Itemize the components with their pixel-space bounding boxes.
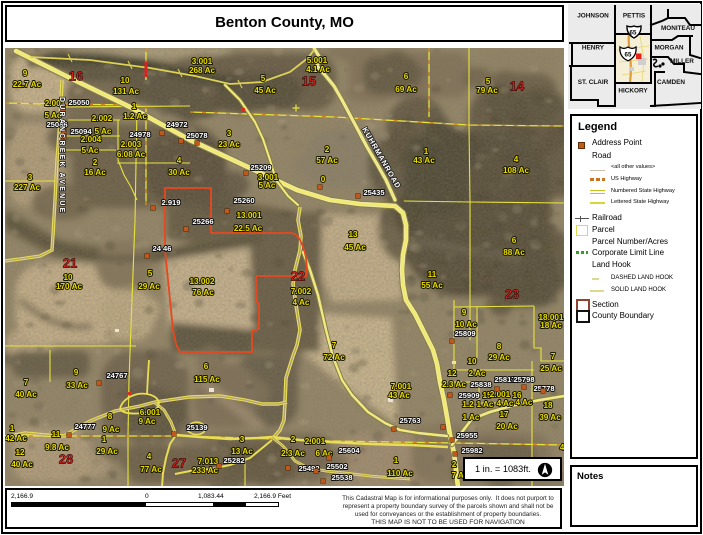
svg-text:25282: 25282: [223, 456, 244, 465]
svg-text:77 Ac: 77 Ac: [140, 465, 162, 474]
svg-text:MONITEAU: MONITEAU: [661, 25, 695, 32]
svg-text:108 Ac: 108 Ac: [503, 166, 530, 175]
svg-text:MORGAN: MORGAN: [654, 45, 683, 52]
svg-text:25538: 25538: [331, 473, 352, 482]
svg-text:65: 65: [630, 30, 637, 37]
svg-text:6: 6: [204, 362, 209, 371]
svg-text:25838: 25838: [470, 380, 491, 389]
svg-text:3: 3: [28, 173, 33, 182]
svg-text:2: 2: [291, 435, 296, 444]
svg-text:9 Ac: 9 Ac: [103, 425, 120, 434]
svg-text:131 Ac: 131 Ac: [113, 87, 140, 96]
svg-text:88 Ac: 88 Ac: [503, 248, 525, 257]
svg-text:8: 8: [497, 342, 502, 351]
svg-text:1.2 Ac: 1.2 Ac: [123, 112, 147, 121]
svg-text:4: 4: [560, 443, 564, 452]
svg-text:2.919: 2.919: [161, 198, 180, 207]
svg-text:25050: 25050: [68, 98, 89, 107]
svg-text:20 Ac: 20 Ac: [496, 422, 518, 431]
svg-text:24767: 24767: [106, 371, 127, 380]
svg-text:6.08 Ac: 6.08 Ac: [117, 150, 146, 159]
svg-text:72 Ac: 72 Ac: [323, 353, 345, 362]
svg-text:57 Ac: 57 Ac: [316, 156, 338, 165]
svg-text:27: 27: [172, 456, 186, 471]
svg-text:1: 1: [102, 435, 107, 444]
svg-text:12: 12: [15, 448, 25, 457]
svg-text:HICKORY: HICKORY: [618, 88, 648, 95]
svg-text:25817: 25817: [494, 375, 515, 384]
svg-text:8: 8: [108, 412, 113, 421]
svg-text:4: 4: [147, 452, 152, 461]
svg-text:29 Ac: 29 Ac: [488, 353, 510, 362]
svg-text:14: 14: [510, 79, 525, 94]
svg-text:4 Ac: 4 Ac: [516, 398, 533, 407]
svg-text:2: 2: [93, 158, 98, 167]
svg-text:25502: 25502: [326, 462, 347, 471]
svg-text:0: 0: [321, 175, 326, 184]
svg-text:2: 2: [452, 460, 457, 469]
svg-text:40 Ac: 40 Ac: [11, 460, 33, 469]
svg-text:4 Ac: 4 Ac: [293, 298, 310, 307]
svg-text:23: 23: [505, 287, 519, 302]
svg-text:18 Ac: 18 Ac: [540, 321, 562, 330]
svg-text:25139: 25139: [186, 423, 207, 432]
svg-text:69 Ac: 69 Ac: [395, 85, 417, 94]
svg-text:5.001: 5.001: [307, 56, 328, 65]
svg-text:2.001: 2.001: [305, 437, 326, 446]
svg-text:25078: 25078: [186, 131, 207, 140]
svg-text:10: 10: [120, 76, 130, 85]
svg-text:110 Ac: 110 Ac: [387, 469, 413, 478]
svg-text:9: 9: [462, 308, 467, 317]
svg-text:7.002: 7.002: [291, 287, 312, 296]
svg-text:5 Ac: 5 Ac: [82, 146, 99, 155]
svg-text:3: 3: [240, 435, 245, 444]
svg-text:18: 18: [543, 401, 553, 410]
svg-text:65: 65: [625, 52, 632, 59]
svg-text:11: 11: [428, 270, 437, 279]
svg-text:6: 6: [404, 72, 409, 81]
svg-text:45 Ac: 45 Ac: [344, 243, 366, 252]
svg-text:15: 15: [302, 74, 316, 89]
svg-text:JOHNSON: JOHNSON: [577, 13, 609, 20]
svg-text:30 Ac: 30 Ac: [168, 168, 190, 177]
svg-text:24972: 24972: [166, 120, 187, 129]
svg-text:13 Ac: 13 Ac: [231, 447, 253, 456]
svg-text:11: 11: [52, 430, 61, 439]
svg-text:10: 10: [467, 357, 477, 366]
svg-text:2.001: 2.001: [490, 390, 511, 399]
svg-text:23 Ac: 23 Ac: [218, 140, 240, 149]
svg-text:33 Ac: 33 Ac: [66, 381, 88, 390]
svg-text:25809: 25809: [454, 329, 475, 338]
svg-text:2.002: 2.002: [92, 114, 113, 123]
svg-text:9: 9: [74, 368, 79, 377]
svg-text:233 Ac: 233 Ac: [192, 466, 219, 475]
svg-text:42 Ac: 42 Ac: [5, 434, 27, 443]
svg-text:MILLER: MILLER: [670, 58, 694, 65]
svg-text:24777: 24777: [74, 422, 95, 431]
svg-text:ST. CLAIR: ST. CLAIR: [578, 79, 609, 86]
svg-text:5: 5: [261, 74, 266, 83]
svg-text:1.2: 1.2: [462, 400, 474, 409]
svg-text:2.004: 2.004: [81, 135, 102, 144]
svg-text:4 Ac: 4 Ac: [497, 399, 514, 408]
svg-text:9: 9: [23, 69, 28, 78]
svg-text:CAMDEN: CAMDEN: [657, 79, 685, 86]
svg-text:21: 21: [63, 256, 77, 271]
svg-text:16: 16: [69, 69, 83, 84]
svg-text:22.5 Ac: 22.5 Ac: [234, 224, 263, 233]
svg-text:25763: 25763: [399, 416, 420, 425]
svg-text:17: 17: [499, 410, 509, 419]
svg-text:13.002: 13.002: [189, 277, 214, 286]
svg-text:2.3 Ac: 2.3 Ac: [442, 380, 466, 389]
svg-text:28: 28: [59, 452, 73, 467]
svg-text:22.7 Ac: 22.7 Ac: [13, 80, 42, 89]
svg-text:13.001: 13.001: [236, 211, 261, 220]
svg-text:1 Ac: 1 Ac: [463, 413, 480, 422]
svg-text:HENRY: HENRY: [582, 45, 605, 52]
svg-text:25798: 25798: [513, 375, 534, 384]
svg-text:2.003: 2.003: [121, 140, 142, 149]
svg-text:10 Ac: 10 Ac: [455, 320, 477, 329]
svg-text:6.001: 6.001: [140, 408, 161, 417]
svg-text:1: 1: [132, 102, 137, 111]
svg-text:9 Ac: 9 Ac: [139, 417, 156, 426]
svg-text:2 Ac: 2 Ac: [469, 369, 486, 378]
svg-text:45 Ac: 45 Ac: [254, 86, 276, 95]
svg-text:6: 6: [512, 236, 517, 245]
svg-text:39 Ac: 39 Ac: [539, 413, 561, 422]
svg-text:24 46: 24 46: [152, 244, 171, 253]
svg-text:43 Ac: 43 Ac: [413, 156, 435, 165]
svg-text:115 Ac: 115 Ac: [194, 375, 220, 384]
svg-text:25435: 25435: [363, 188, 385, 197]
svg-text:2.3 Ac: 2.3 Ac: [281, 449, 305, 458]
svg-text:76 Ac: 76 Ac: [192, 288, 214, 297]
svg-text:25955: 25955: [456, 431, 478, 440]
svg-text:16 Ac: 16 Ac: [84, 168, 106, 177]
svg-text:DURANCREEK AVENUE: DURANCREEK AVENUE: [58, 97, 65, 215]
svg-text:10: 10: [63, 273, 73, 282]
svg-text:29 Ac: 29 Ac: [138, 282, 160, 291]
svg-text:1: 1: [424, 147, 429, 156]
svg-text:PETTIS: PETTIS: [623, 13, 646, 20]
svg-text:12: 12: [447, 369, 457, 378]
svg-text:5: 5: [148, 269, 153, 278]
svg-text:25209: 25209: [250, 163, 271, 172]
svg-text:2: 2: [325, 145, 330, 154]
svg-text:227 Ac: 227 Ac: [14, 183, 41, 192]
svg-text:25266: 25266: [192, 217, 213, 226]
svg-text:170 Ac: 170 Ac: [56, 282, 83, 291]
svg-text:7: 7: [551, 352, 556, 361]
svg-text:25 Ac: 25 Ac: [540, 364, 562, 373]
svg-text:7.013: 7.013: [198, 457, 219, 466]
svg-text:268 Ac: 268 Ac: [189, 66, 216, 75]
svg-text:1: 1: [394, 456, 399, 465]
svg-text:29 Ac: 29 Ac: [96, 447, 118, 456]
svg-text:25982: 25982: [461, 446, 482, 455]
svg-text:3: 3: [227, 129, 232, 138]
svg-text:1: 1: [10, 424, 15, 433]
svg-text:25094: 25094: [70, 127, 92, 136]
svg-text:25604: 25604: [338, 446, 360, 455]
svg-text:25260: 25260: [233, 196, 254, 205]
svg-text:24978: 24978: [129, 130, 150, 139]
svg-text:4: 4: [177, 156, 182, 165]
svg-text:5 Ac: 5 Ac: [259, 181, 276, 190]
svg-text:13: 13: [348, 230, 358, 239]
svg-text:7: 7: [24, 378, 29, 387]
svg-text:4: 4: [514, 155, 519, 164]
svg-text:25909: 25909: [458, 391, 479, 400]
svg-text:79 Ac: 79 Ac: [476, 86, 498, 95]
svg-text:22: 22: [291, 269, 305, 284]
svg-text:55 Ac: 55 Ac: [421, 281, 443, 290]
svg-text:1 Ac: 1 Ac: [477, 400, 494, 409]
svg-text:7: 7: [332, 341, 337, 350]
svg-text:7.001: 7.001: [391, 382, 412, 391]
svg-text:40 Ac: 40 Ac: [15, 390, 37, 399]
svg-text:3.001: 3.001: [192, 57, 213, 66]
svg-text:43 Ac: 43 Ac: [388, 391, 410, 400]
svg-text:5: 5: [486, 77, 491, 86]
